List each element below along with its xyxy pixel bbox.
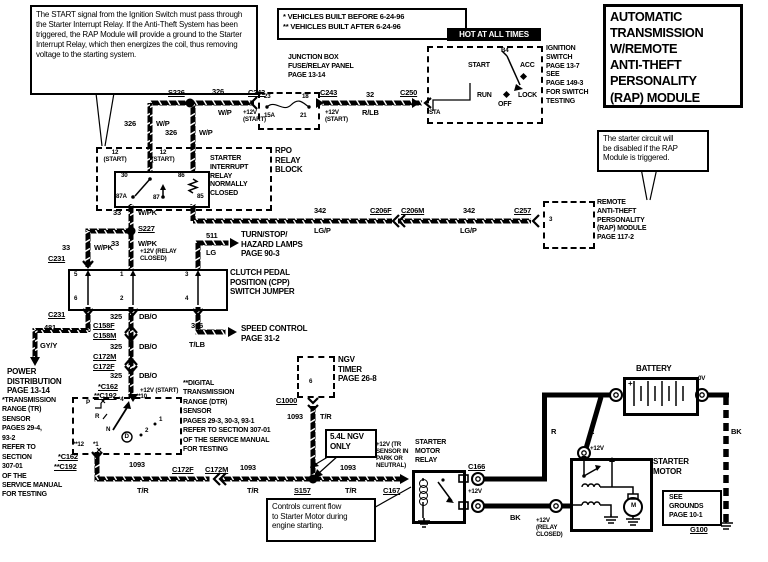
ngv-timer-box (297, 356, 335, 398)
wire-481-gauge: 481 (44, 323, 56, 332)
ignition-lock: LOCK (518, 92, 537, 101)
start-signal-callout-text: The START signal from the Ignition Switc… (32, 7, 256, 63)
tr-pos-r: R (95, 414, 99, 421)
wire-33-branch-color: W/PK (94, 243, 113, 252)
rap-module-label: REMOTE ANTI-THEFT PERSONALITY (RAP) MODU… (597, 199, 646, 243)
s157-splice-label: S157 (294, 486, 311, 495)
ignition-note: IGNITION SWITCH PAGE 13-7 SEE PAGE 149-3… (546, 45, 588, 106)
diagram-title-box: AUTOMATIC TRANSMISSION W/REMOTE ANTI-THE… (603, 4, 743, 108)
ignition-sta: STA (429, 110, 440, 117)
wire-326-top-color: W/P (218, 108, 232, 117)
s226-splice-label: S226 (168, 88, 185, 97)
starter-motor-box (570, 458, 653, 532)
ngv-only-text: 5.4L NGV ONLY (327, 431, 375, 452)
ignition-off: OFF (498, 101, 511, 110)
wire-326-top-gauge: 326 (212, 87, 224, 96)
c172f-bottom-label: C172F (172, 465, 194, 474)
c172m-bottom-label: C172M (205, 465, 228, 474)
dtr-sensor-note: **DIGITAL TRANSMISSION RANGE (DTR) SENSO… (183, 379, 270, 455)
ngv-only-box: 5.4L NGV ONLY (325, 429, 377, 458)
wiring-diagram: The START signal from the Ignition Switc… (0, 0, 768, 562)
starter-interrupt-relay-box (114, 171, 210, 208)
vehicle-note-before: * VEHICLES BUILT BEFORE 6-24-96 (283, 12, 404, 21)
wire-325-c-gauge: 325 (110, 371, 122, 380)
wire-325-a-gauge: 325 (110, 312, 122, 321)
ignition-b4: B4 (501, 48, 509, 55)
relay-pin-85: 85 (197, 194, 203, 201)
cpp-label: CLUTCH PEDAL POSITION (CPP) SWITCH JUMPE… (230, 268, 295, 297)
cpp-pin-6: 6 (74, 296, 77, 303)
start-signal-callout: The START signal from the Ignition Switc… (30, 5, 258, 95)
cpp-pin-2: 2 (120, 296, 123, 303)
wire-326-mid-gauge: 326 (165, 128, 177, 137)
battery-plus: + (628, 379, 632, 389)
relay-coil-turn-4 (419, 497, 428, 506)
rap-callout-text: The starter circuit will be disabled if … (599, 132, 707, 165)
relay-pin-12-start-a: 12 (START) (100, 150, 130, 164)
rap-pin-3: 3 (549, 217, 552, 224)
wire-342-right-gauge: 342 (463, 206, 475, 215)
ignition-run: RUN (477, 92, 492, 101)
wire-325-c-color: DB/O (139, 371, 157, 380)
junction-box-label: JUNCTION BOX FUSE/RELAY PANEL PAGE 13-14 (288, 54, 354, 80)
tr-pin-1: *1 (93, 442, 98, 449)
rap-callout: The starter circuit will be disabled if … (597, 130, 709, 172)
cpp-pin-3: 3 (185, 272, 188, 279)
controls-callout: Controls current flow to Starter Motor d… (266, 498, 376, 542)
c172m-label: C172M (93, 352, 116, 361)
c231-bottom-label: C231 (48, 310, 65, 319)
wire-511-gauge: 511 (206, 231, 218, 240)
wire-1093-a-gauge: 1093 (129, 460, 145, 469)
c257-label: C257 (514, 206, 531, 215)
relay-pin-87: 87 (153, 195, 159, 202)
c162-top-label: *C162 (98, 382, 118, 391)
wire-32-gauge: 32 (366, 90, 374, 99)
see-grounds-box: SEE GROUNDS PAGE 10-1 (662, 490, 722, 526)
volt-relay-closed-mid: +12V (RELAY CLOSED) (140, 249, 177, 263)
c206m-label: C206M (401, 206, 424, 215)
ngv-timer-label: NGV TIMER PAGE 26-8 (338, 355, 377, 384)
volt-tr-sensor: +12V (TR SENSOR IN PARK OR NEUTRAL) (376, 442, 408, 470)
c162-bottom-label: *C162 (58, 452, 78, 461)
rpo-relay-block-label: RPO RELAY BLOCK (275, 146, 302, 175)
wire-1093-b-gauge: 1093 (240, 463, 256, 472)
see-grounds-text: SEE GROUNDS PAGE 10-1 (664, 492, 720, 522)
ignition-start: START (468, 62, 490, 71)
cpp-switch-jumper-box (68, 269, 228, 311)
wire-33-branch-gauge: 33 (62, 243, 70, 252)
c206f-label: C206F (370, 206, 392, 215)
volt-battery-0v: 0V (698, 376, 705, 383)
wire-32-color: R/LB (362, 108, 379, 117)
relay-pin-87a: 87A (116, 194, 127, 201)
relay-pin-30: 30 (121, 173, 127, 180)
wire-1093-a-color: T/R (137, 486, 148, 495)
wire-1093-c-color: T/R (345, 486, 356, 495)
volt-relay-closed-bottom: +12V (RELAY CLOSED) (536, 518, 562, 539)
wire-1093-c-gauge: 1093 (340, 463, 356, 472)
wire-326-left-gauge: 326 (124, 119, 136, 128)
diagram-title: AUTOMATIC TRANSMISSION W/REMOTE ANTI-THE… (606, 7, 740, 108)
tr-pos-d: D (125, 434, 129, 441)
wire-481-color: GY/Y (40, 341, 57, 350)
cpp-pin-4: 4 (185, 296, 188, 303)
volt-start-right: +12V (START) (325, 110, 348, 124)
rap-module-box (543, 201, 595, 249)
dest-speed-control: SPEED CONTROL PAGE 31-2 (241, 324, 307, 343)
s227-splice-label: S227 (138, 224, 155, 233)
wire-325-b-gauge: 325 (110, 342, 122, 351)
wire-325-a-color: DB/O (139, 312, 157, 321)
tr-pos-n: N (106, 427, 110, 434)
relay-pin-86: 86 (178, 173, 184, 180)
wire-342-right-color: LG/P (460, 226, 477, 235)
dest-power-distribution: POWER DISTRIBUTION PAGE 13-14 (7, 367, 62, 396)
c192-bottom-label: **C192 (54, 462, 77, 471)
c231-top-label: C231 (48, 254, 65, 263)
starter-interrupt-relay-label: STARTER INTERRUPT RELAY NORMALLY CLOSED (210, 155, 248, 199)
c250-label: C250 (400, 88, 417, 97)
wire-342-left-gauge: 342 (314, 206, 326, 215)
hot-at-all-times-banner: HOT AT ALL TIMES (447, 28, 541, 41)
c172f-label: C172F (93, 362, 115, 371)
c158f-label: C158F (93, 321, 115, 330)
wire-bk-bottom: BK (510, 513, 520, 522)
ngv-pin-6: 6 (309, 379, 312, 386)
relay-pin-12-start-b: 12 (START) (148, 150, 178, 164)
c1000-label: C1000 (276, 396, 297, 405)
wire-33-upper-gauge: 33 (113, 208, 121, 217)
cpp-pin-1: 1 (120, 272, 123, 279)
ignition-acc: ACC (520, 62, 535, 71)
tr-pos-2: 2 (145, 428, 148, 435)
wire-325-b-color: DB/O (139, 342, 157, 351)
tr-pin-12: **12 (73, 442, 84, 449)
starter-motor-relay-label: STARTER MOTOR RELAY (415, 439, 446, 465)
volt-c166: +12V (468, 489, 482, 496)
wire-r-right: R (589, 427, 594, 436)
c167-label: C167 (383, 486, 400, 495)
c158m-label: C158M (93, 331, 116, 340)
wire-33-mid-color: W/PK (138, 239, 157, 248)
starter-motor-m: M (629, 503, 638, 510)
starter-motor-label: STARTER MOTOR (653, 457, 689, 476)
wire-326-left-color: W/P (156, 119, 170, 128)
battery-box (623, 377, 699, 416)
wire-1093-b-color: T/R (247, 486, 258, 495)
c166-label: C166 (468, 462, 485, 471)
wire-511-color: LG (206, 248, 216, 257)
tr-pos-1: 1 (159, 417, 162, 424)
fuse-pin-18: 18 (302, 94, 308, 101)
volt-starter-top: +12V (590, 446, 604, 453)
wire-326-mid-color: W/P (199, 128, 213, 137)
cpp-pin-5: 5 (74, 272, 77, 279)
tr-pin-10: **10 (136, 394, 147, 401)
volt-start-tr: +12V (START) (140, 388, 178, 395)
c192-top-label: **C192 (94, 391, 117, 400)
controls-callout-text: Controls current flow to Starter Motor d… (268, 500, 374, 533)
tr-pos-p: P (86, 400, 90, 407)
wire-bk-ground: BK (731, 427, 741, 436)
vehicle-note-after: ** VEHICLES BUILT AFTER 6-24-96 (283, 22, 401, 31)
fuse-pin-21: 21 (300, 113, 306, 120)
wire-342-left-color: LG/P (314, 226, 331, 235)
battery-label: BATTERY (636, 364, 672, 374)
c243-right-label: C243 (320, 88, 337, 97)
tr-sensor-note: *TRANSMISSION RANGE (TR) SENSOR PAGES 29… (2, 396, 62, 500)
wire-1093-d-color: T/R (320, 412, 331, 421)
wire-33-upper-color: W/PK (138, 208, 157, 217)
c243-left-label: C243 (248, 88, 265, 97)
volt-start-left: +12V (START) (243, 110, 266, 124)
ignition-switch-box (427, 46, 543, 124)
wire-r-left: R (551, 427, 556, 436)
dest-turn-stop: TURN/STOP/ HAZARD LAMPS PAGE 90-3 (241, 230, 303, 259)
wire-306-gauge: 306 (191, 321, 203, 330)
g100-label: G100 (690, 525, 708, 534)
wire-1093-d-gauge: 1093 (287, 412, 303, 421)
tr-pin-4: *4 (118, 397, 123, 404)
wire-306-color: T/LB (189, 340, 205, 349)
